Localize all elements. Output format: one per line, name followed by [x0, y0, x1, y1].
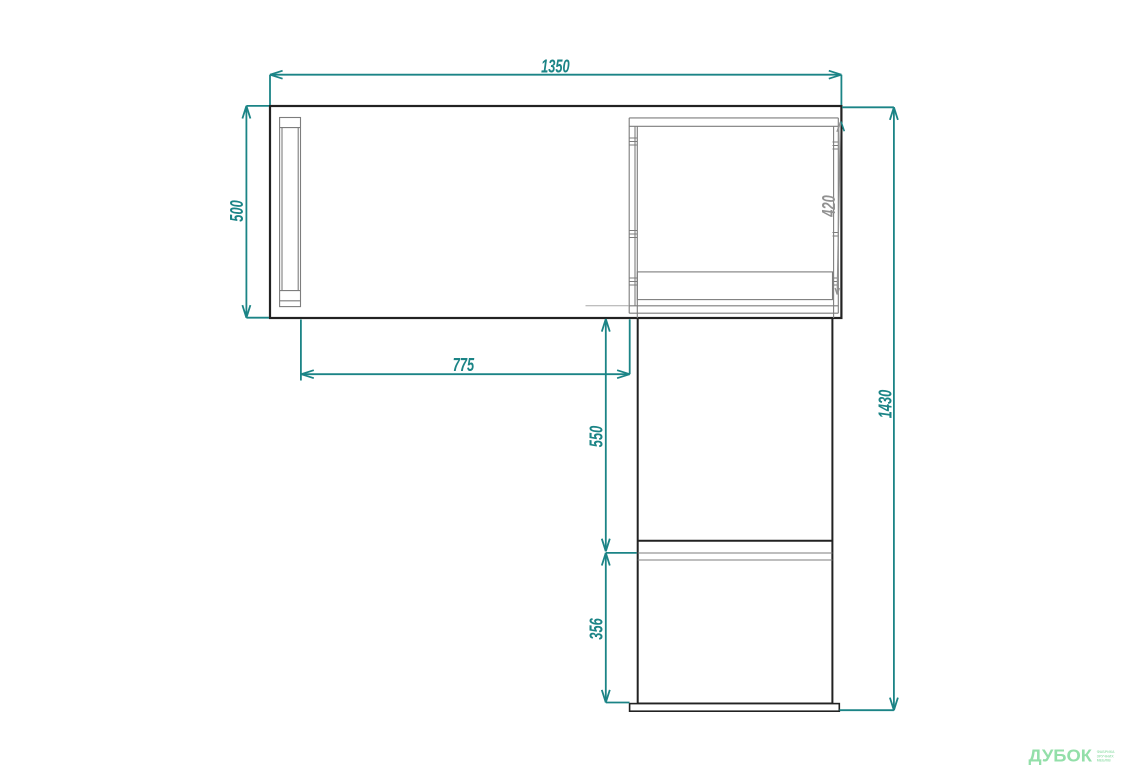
svg-text:550: 550 — [587, 426, 607, 447]
svg-text:1430: 1430 — [875, 390, 895, 419]
svg-text:ФАБРИКА: ФАБРИКА — [1097, 750, 1115, 754]
svg-text:ДУБОК: ДУБОК — [1029, 746, 1093, 766]
svg-text:775: 775 — [453, 355, 475, 375]
svg-text:500: 500 — [227, 200, 247, 221]
svg-text:1350: 1350 — [541, 57, 570, 77]
svg-text:356: 356 — [587, 618, 607, 640]
svg-text:МЕБЛІВ: МЕБЛІВ — [1097, 759, 1111, 763]
svg-text:420: 420 — [819, 195, 839, 217]
